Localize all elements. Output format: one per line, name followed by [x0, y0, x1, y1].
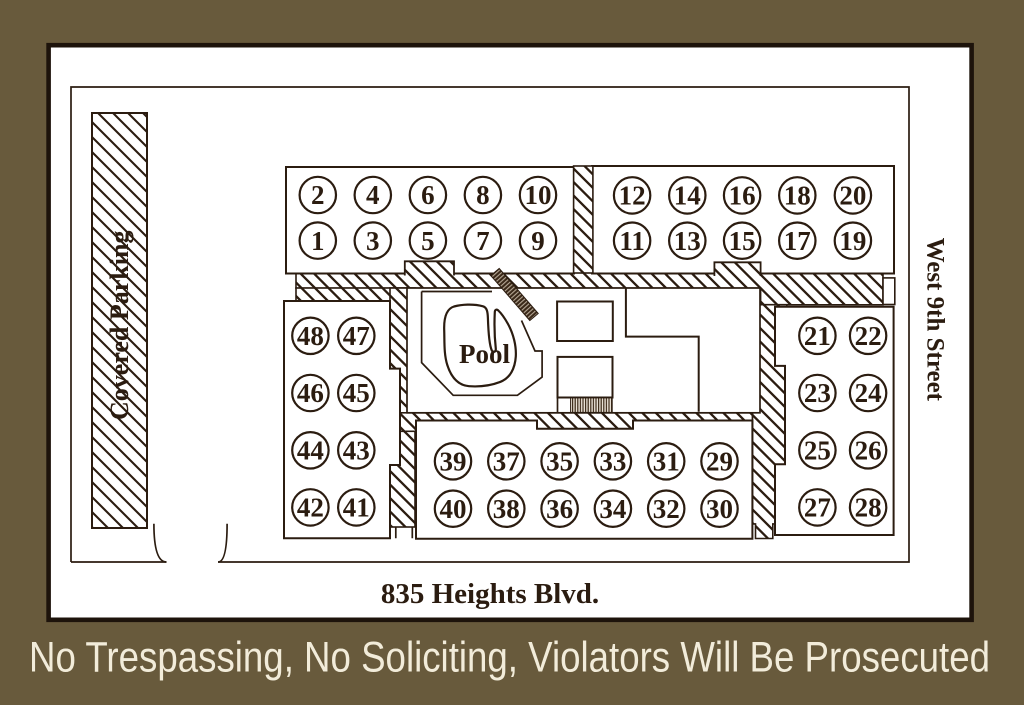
svg-text:33: 33 [599, 447, 626, 477]
svg-text:7: 7 [476, 226, 490, 256]
svg-text:35: 35 [546, 447, 573, 477]
svg-text:18: 18 [784, 181, 811, 211]
svg-text:2: 2 [311, 180, 325, 210]
svg-text:47: 47 [343, 321, 370, 351]
svg-text:40: 40 [440, 494, 467, 524]
svg-text:27: 27 [804, 493, 831, 523]
svg-text:44: 44 [297, 436, 324, 466]
svg-text:28: 28 [855, 493, 882, 523]
svg-text:No Trespassing, No Soliciting,: No Trespassing, No Soliciting, Violators… [29, 635, 990, 682]
svg-text:29: 29 [706, 447, 733, 477]
svg-text:48: 48 [297, 321, 324, 351]
svg-text:14: 14 [674, 181, 701, 211]
svg-text:36: 36 [546, 494, 573, 524]
svg-text:43: 43 [343, 436, 370, 466]
svg-text:10: 10 [525, 180, 552, 210]
svg-text:39: 39 [440, 447, 467, 477]
svg-text:41: 41 [343, 493, 370, 523]
svg-text:9: 9 [531, 226, 545, 256]
svg-text:16: 16 [729, 181, 756, 211]
svg-text:19: 19 [839, 226, 866, 256]
svg-text:17: 17 [784, 226, 811, 256]
svg-text:3: 3 [366, 226, 380, 256]
svg-text:12: 12 [619, 181, 646, 211]
svg-text:6: 6 [421, 180, 435, 210]
svg-text:8: 8 [476, 180, 490, 210]
svg-text:Covered Parking: Covered Parking [105, 231, 134, 420]
svg-text:23: 23 [804, 378, 831, 408]
svg-text:42: 42 [297, 493, 324, 523]
svg-text:4: 4 [366, 180, 380, 210]
svg-text:1: 1 [311, 226, 325, 256]
svg-text:30: 30 [706, 494, 733, 524]
svg-text:37: 37 [493, 447, 520, 477]
svg-text:38: 38 [493, 494, 520, 524]
svg-text:West 9th Street: West 9th Street [922, 238, 949, 402]
svg-text:45: 45 [343, 378, 370, 408]
svg-text:11: 11 [619, 226, 645, 256]
svg-text:25: 25 [804, 436, 831, 466]
svg-text:32: 32 [653, 494, 680, 524]
svg-text:24: 24 [855, 378, 882, 408]
svg-text:20: 20 [839, 181, 866, 211]
svg-text:46: 46 [297, 378, 324, 408]
svg-text:13: 13 [674, 226, 701, 256]
svg-text:Pool: Pool [459, 339, 510, 369]
svg-text:34: 34 [599, 494, 626, 524]
svg-text:5: 5 [421, 226, 435, 256]
svg-text:21: 21 [804, 321, 831, 351]
svg-text:835 Heights Blvd.: 835 Heights Blvd. [381, 578, 599, 610]
svg-text:15: 15 [729, 226, 756, 256]
svg-text:26: 26 [855, 436, 882, 466]
svg-text:22: 22 [855, 321, 882, 351]
svg-text:31: 31 [653, 447, 680, 477]
